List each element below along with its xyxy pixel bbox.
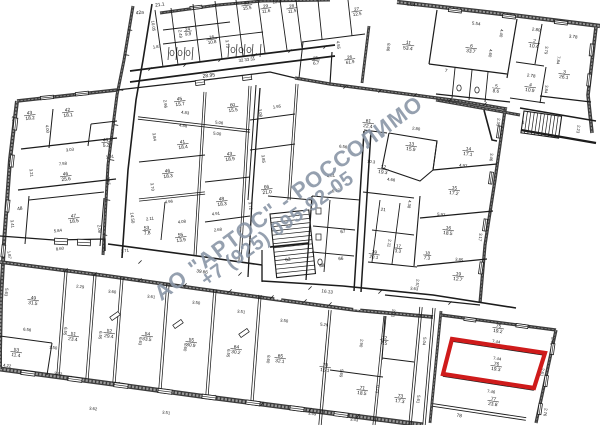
svg-text:2.08: 2.08: [97, 224, 103, 233]
svg-text:29.4: 29.4: [104, 333, 114, 340]
svg-text:3.79: 3.79: [543, 46, 549, 55]
svg-text:48: 48: [17, 206, 23, 213]
svg-text:4.83: 4.83: [181, 110, 190, 116]
svg-text:3.55: 3.55: [106, 176, 112, 185]
svg-text:25.6: 25.6: [61, 176, 71, 183]
svg-text:3.84: 3.84: [152, 132, 158, 141]
svg-text:15.9: 15.9: [406, 146, 416, 153]
svg-text:3.3: 3.3: [394, 248, 401, 254]
svg-text:4.55: 4.55: [336, 40, 342, 49]
svg-text:2.29: 2.29: [76, 284, 85, 290]
svg-text:3.70: 3.70: [150, 182, 156, 191]
svg-text:5.00: 5.00: [213, 131, 222, 137]
svg-text:18.1: 18.1: [63, 112, 73, 119]
svg-text:1.71: 1.71: [120, 247, 129, 253]
svg-text:2.11: 2.11: [386, 239, 392, 248]
svg-text:3.50: 3.50: [192, 300, 201, 306]
svg-text:5.97: 5.97: [437, 212, 446, 218]
svg-text:3.51: 3.51: [162, 410, 171, 416]
svg-text:6.7: 6.7: [313, 60, 320, 66]
svg-text:4.08: 4.08: [177, 218, 186, 224]
svg-text:19.3: 19.3: [378, 169, 388, 176]
svg-text:5.26: 5.26: [320, 322, 329, 328]
svg-text:4.97: 4.97: [459, 163, 468, 169]
svg-text:8.66: 8.66: [385, 43, 391, 52]
svg-text:4.40: 4.40: [498, 29, 504, 38]
svg-text:2.80: 2.80: [412, 126, 421, 132]
svg-text:10.3: 10.3: [367, 159, 376, 165]
svg-text:21.1: 21.1: [155, 1, 165, 8]
svg-text:3.73: 3.73: [225, 39, 231, 48]
svg-text:1.50: 1.50: [49, 345, 58, 351]
svg-text:31.5: 31.5: [28, 300, 38, 307]
svg-text:18.4: 18.4: [178, 144, 188, 151]
svg-text:1.95: 1.95: [272, 103, 281, 109]
svg-text:26.1: 26.1: [559, 74, 569, 81]
svg-text:6.56: 6.56: [23, 327, 32, 333]
svg-text:8.60: 8.60: [182, 343, 188, 352]
svg-text:18.3: 18.3: [217, 201, 227, 208]
svg-text:2.49: 2.49: [178, 29, 184, 38]
svg-text:6.55: 6.55: [225, 349, 231, 358]
svg-text:15.7: 15.7: [175, 101, 185, 108]
svg-text:18.5: 18.5: [69, 218, 79, 225]
svg-text:5.04: 5.04: [421, 337, 427, 346]
svg-text:33.7: 33.7: [466, 48, 476, 55]
svg-text:7.58: 7.58: [58, 160, 67, 166]
svg-text:4.66: 4.66: [387, 177, 396, 183]
svg-text:4.00: 4.00: [45, 124, 51, 133]
svg-text:3.84: 3.84: [543, 85, 549, 94]
svg-text:18.9: 18.9: [225, 156, 235, 163]
svg-text:3.61: 3.61: [147, 294, 156, 300]
svg-text:9.9: 9.9: [185, 31, 192, 37]
svg-text:6.63: 6.63: [137, 337, 143, 346]
svg-text:3.85: 3.85: [455, 257, 464, 263]
svg-text:8.60: 8.60: [55, 245, 64, 251]
svg-text:7.5: 7.5: [380, 340, 388, 347]
svg-text:3.51: 3.51: [237, 309, 246, 315]
svg-text:17.2: 17.2: [449, 190, 459, 197]
svg-text:3.46: 3.46: [488, 153, 494, 162]
svg-text:4.91: 4.91: [211, 210, 220, 216]
svg-text:3.60: 3.60: [108, 289, 117, 295]
svg-text:4.22: 4.22: [3, 363, 12, 369]
svg-text:8.6: 8.6: [492, 88, 499, 94]
svg-text:53.4: 53.4: [403, 45, 414, 52]
svg-text:4.38: 4.38: [406, 200, 412, 209]
svg-text:12.7: 12.7: [453, 276, 463, 283]
svg-text:3.41: 3.41: [10, 219, 16, 228]
svg-text:17.3: 17.3: [395, 398, 405, 405]
svg-text:8.60: 8.60: [265, 355, 271, 364]
svg-text:5.84: 5.84: [53, 227, 62, 233]
svg-text:13.9: 13.9: [176, 237, 186, 244]
svg-text:6.55: 6.55: [97, 331, 103, 340]
svg-text:63: 63: [285, 257, 291, 264]
svg-text:5.63: 5.63: [3, 288, 9, 297]
svg-text:5.06: 5.06: [215, 120, 224, 126]
svg-text:18.2: 18.2: [25, 115, 35, 122]
svg-text:1.87: 1.87: [7, 250, 13, 259]
svg-text:10.9: 10.9: [525, 87, 535, 94]
svg-text:3.17: 3.17: [477, 233, 483, 242]
svg-text:3.43: 3.43: [350, 417, 359, 423]
svg-text:17.1: 17.1: [463, 151, 473, 158]
svg-text:5.69: 5.69: [338, 369, 344, 378]
svg-text:2.11: 2.11: [146, 215, 155, 221]
svg-text:11.4: 11.4: [11, 352, 21, 359]
svg-text:4.96: 4.96: [164, 198, 173, 204]
svg-text:3.21: 3.21: [29, 168, 35, 177]
svg-text:23.4: 23.4: [68, 336, 78, 343]
svg-text:4.86: 4.86: [179, 123, 188, 129]
svg-text:7.84: 7.84: [555, 56, 561, 65]
svg-text:2.01: 2.01: [390, 309, 396, 318]
svg-text:3.85: 3.85: [261, 154, 267, 163]
svg-text:0.73: 0.73: [374, 385, 380, 394]
svg-text:3.62: 3.62: [89, 406, 98, 412]
svg-text:5.61: 5.61: [415, 395, 421, 404]
svg-text:5.2: 5.2: [103, 142, 111, 149]
svg-text:6.55: 6.55: [62, 327, 68, 336]
svg-text:18.5: 18.5: [357, 390, 367, 397]
svg-text:2.23: 2.23: [575, 125, 581, 134]
svg-text:2.57: 2.57: [414, 279, 420, 288]
svg-text:7.8: 7.8: [144, 230, 152, 237]
svg-text:42a: 42a: [136, 10, 145, 17]
svg-text:15.1: 15.1: [320, 367, 330, 374]
svg-text:4.60: 4.60: [487, 49, 493, 58]
svg-text:7.3: 7.3: [423, 255, 430, 261]
svg-text:18.3: 18.3: [163, 173, 173, 180]
svg-text:1.91: 1.91: [105, 153, 114, 159]
svg-text:1.87: 1.87: [152, 43, 161, 49]
svg-text:2.90: 2.90: [358, 339, 364, 348]
svg-text:2.35: 2.35: [495, 118, 501, 127]
svg-text:10.4: 10.4: [529, 43, 539, 50]
svg-text:3.50: 3.50: [280, 318, 289, 324]
svg-text:3.82: 3.82: [54, 371, 63, 377]
svg-text:3.03: 3.03: [65, 146, 74, 152]
svg-text:18.5: 18.5: [443, 230, 453, 237]
svg-text:2.96: 2.96: [163, 99, 169, 108]
svg-text:32.1: 32.1: [275, 358, 285, 365]
